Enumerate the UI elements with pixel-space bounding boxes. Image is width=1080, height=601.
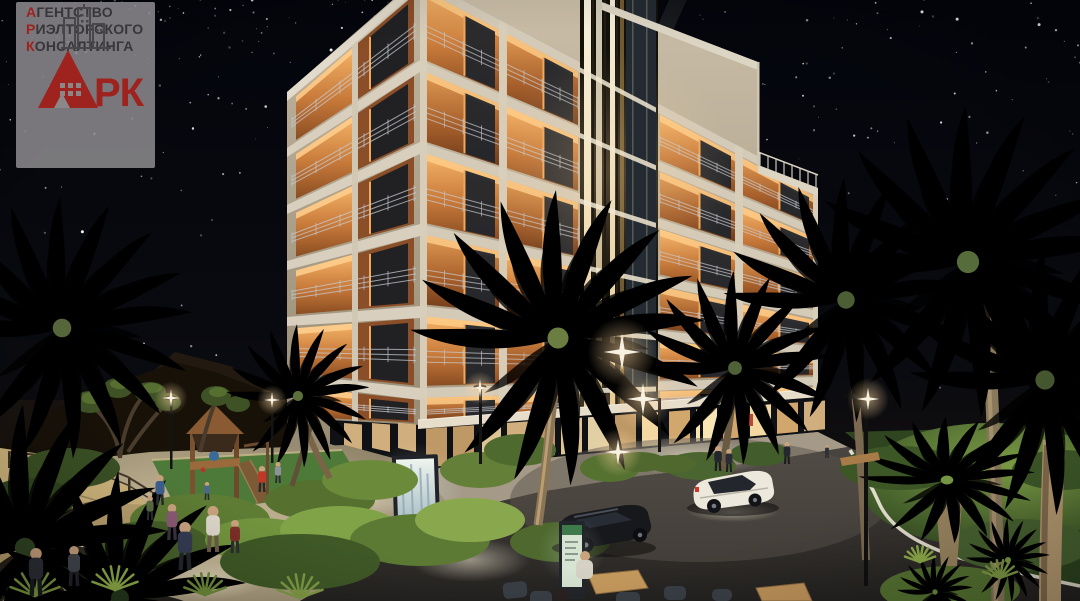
city-skyline-icon xyxy=(61,4,111,48)
house-letter-a-icon xyxy=(38,50,98,108)
ark-logo-mark: РК xyxy=(16,2,155,112)
scene xyxy=(0,0,1080,601)
rendered-photo: РК АГЕНТСТВО РИЭЛТОРСКОГО КОНСАЛТИНГА xyxy=(0,0,1080,601)
ark-logotype: РК xyxy=(94,71,145,112)
vignette xyxy=(0,0,1080,601)
watermark-logo: РК АГЕНТСТВО РИЭЛТОРСКОГО КОНСАЛТИНГА xyxy=(16,2,155,168)
